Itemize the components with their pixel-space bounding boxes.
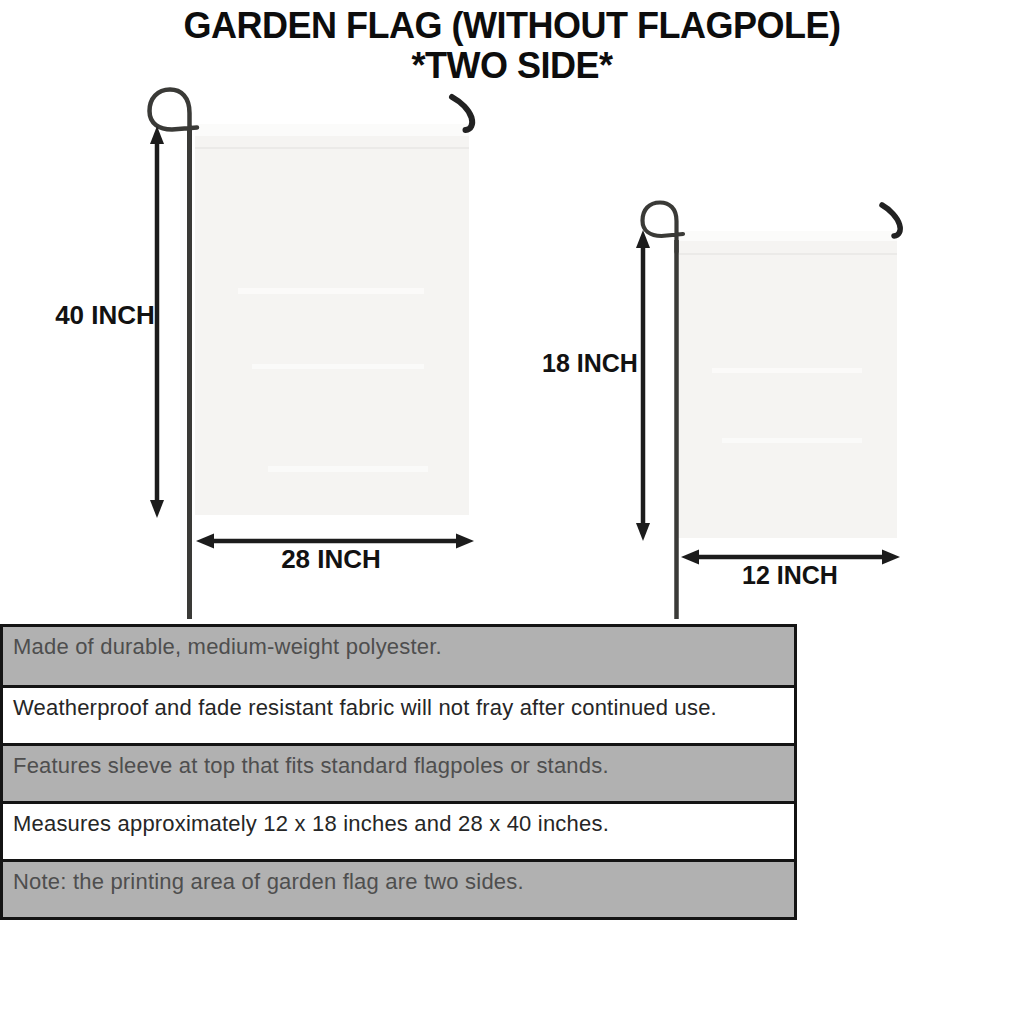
spec-row-text: Features sleeve at top that fits standar… [13, 753, 609, 778]
large-flag-sleeve [195, 124, 469, 136]
arrowhead-right-icon [882, 550, 900, 565]
small-flag-fabric [678, 231, 897, 538]
fold-streak [712, 368, 862, 373]
arrowhead-left-icon [681, 550, 699, 565]
small-flag-group: 18 INCH 12 INCH [542, 203, 900, 620]
fold-streak [238, 288, 424, 294]
spec-row-weatherproof: Weatherproof and fade resistant fabric w… [3, 685, 794, 743]
spec-row-text: Measures approximately 12 x 18 inches an… [13, 811, 609, 836]
spec-table: Made of durable, medium-weight polyester… [0, 624, 797, 920]
arrowhead-down-icon [636, 523, 650, 541]
large-flag-width-label: 28 INCH [281, 544, 381, 574]
spec-row-material: Made of durable, medium-weight polyester… [3, 627, 794, 685]
large-flag-fabric [195, 124, 469, 515]
small-flag-height-label: 18 INCH [542, 349, 638, 377]
small-flag-sleeve [678, 231, 897, 241]
large-flag-group: 40 INCH 28 INCH [55, 90, 474, 620]
spec-row-text: Made of durable, medium-weight polyester… [13, 634, 442, 659]
spec-row-sleeve: Features sleeve at top that fits standar… [3, 743, 794, 801]
arrowhead-right-icon [456, 534, 474, 549]
arrowhead-left-icon [196, 534, 214, 549]
fold-streak [268, 466, 428, 472]
spec-row-text: Note: the printing area of garden flag a… [13, 869, 524, 894]
arrowhead-down-icon [150, 500, 164, 518]
spec-row-text: Weatherproof and fade resistant fabric w… [13, 695, 717, 720]
spec-row-measures: Measures approximately 12 x 18 inches an… [3, 801, 794, 859]
fold-streak [722, 438, 862, 443]
product-infographic: { "title": { "line1": "GARDEN FLAG (WITH… [0, 0, 1024, 1024]
spec-row-note: Note: the printing area of garden flag a… [3, 859, 794, 917]
fold-streak [252, 364, 424, 369]
small-flag-width-label: 12 INCH [742, 561, 838, 589]
large-flag-height-label: 40 INCH [55, 300, 155, 330]
